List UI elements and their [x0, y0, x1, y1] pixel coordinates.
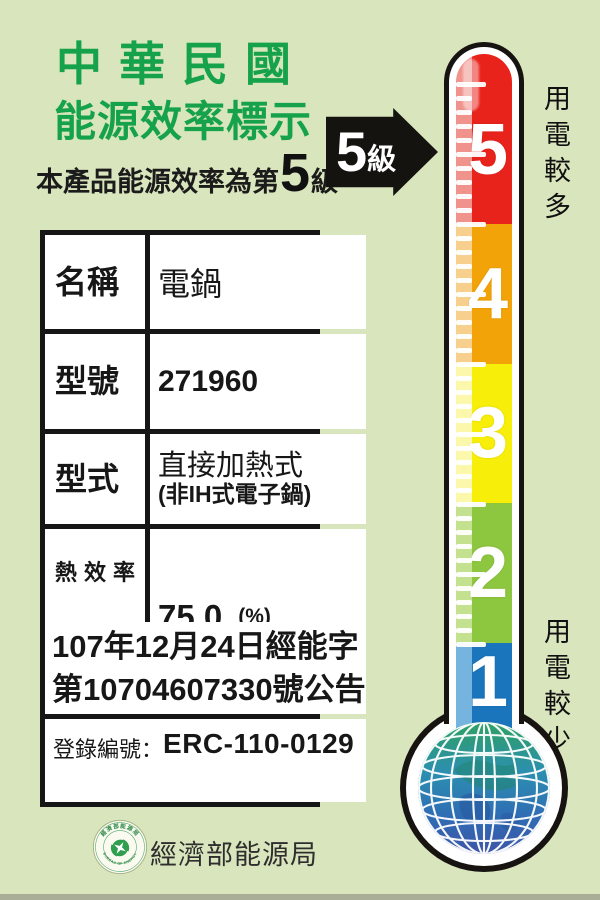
logo-swirl-icon [111, 839, 129, 857]
tick-mark [456, 460, 472, 465]
type-value-line1: 直接加熱式 [158, 450, 311, 482]
grade-sentence-prefix: 本產品能源效率為第 [36, 160, 279, 199]
tick-mark [456, 390, 472, 395]
tick-mark [456, 418, 472, 423]
label-title-line1: 中華民國 [56, 28, 308, 94]
bureau-of-energy-logo: 經濟部能源局 BUREAU OF ENERGY [92, 819, 148, 875]
tick-mark [456, 180, 472, 185]
tick-mark [456, 404, 472, 409]
table-row-name: 名稱 電鍋 [45, 235, 366, 329]
grade-sentence-number: 5 [280, 146, 310, 200]
tick-mark [456, 614, 472, 619]
tick-mark [456, 222, 486, 227]
tick-mark [456, 292, 486, 297]
thermometer-label-more-power: 用電較多 [536, 84, 575, 228]
product-spec-table: 名稱 電鍋 型號 271960 型式 直接加熱式 (非IH式電子鍋) 熱效率值 [40, 230, 320, 807]
table-row-model: 型號 271960 [45, 334, 366, 429]
tick-mark [456, 110, 472, 115]
type-label: 型式 [45, 434, 129, 524]
model-label-cell: 型號 [45, 334, 145, 429]
table-row-announcement: 107年12月24日經能字 第10704607330號公告 [45, 622, 366, 714]
tick-mark [456, 586, 472, 591]
name-label: 名稱 [45, 235, 129, 329]
tick-mark [456, 208, 472, 213]
tick-mark [456, 250, 472, 255]
tick-mark [456, 432, 486, 437]
announcement-cell: 107年12月24日經能字 第10704607330號公告 [45, 622, 366, 714]
registration-number: ERC-110-0129 [163, 728, 354, 760]
tick-mark [456, 376, 472, 381]
tick-mark [456, 516, 472, 521]
tick-mark [456, 124, 472, 129]
announcement-line2: 第10704607330號公告 [52, 668, 366, 711]
type-value-line2: (非IH式電子鍋) [158, 482, 311, 508]
product-grade-sentence: 本產品能源效率為第 5 級 [36, 146, 338, 212]
tick-mark [456, 334, 472, 339]
tick-mark [456, 558, 472, 563]
tick-mark [456, 642, 486, 647]
tick-mark [456, 320, 472, 325]
tick-mark [456, 138, 472, 143]
tick-mark [456, 96, 472, 101]
grade-arrow-number: 5 [336, 124, 367, 180]
tick-mark [456, 474, 472, 479]
tick-mark [456, 236, 472, 241]
tick-mark [456, 502, 486, 507]
energy-efficiency-label: 中華民國 能源效率標示 本產品能源效率為第 5 級 5 級 名稱 電鍋 型號 2… [0, 0, 600, 900]
model-value-cell: 271960 [150, 334, 366, 429]
announcement-line1: 107年12月24日經能字 [52, 625, 366, 668]
name-value-cell: 電鍋 [150, 235, 366, 329]
agency-name: 經濟部能源局 [150, 833, 318, 872]
table-row-efficiency: 熱效率值 75.0 (%) [45, 529, 366, 617]
type-label-cell: 型式 [45, 434, 145, 524]
tick-mark [456, 572, 486, 577]
tick-mark [456, 488, 472, 493]
tick-mark [456, 530, 472, 535]
tick-mark [456, 166, 472, 171]
tick-mark [456, 278, 472, 283]
tick-mark [456, 306, 472, 311]
globe-icon [414, 718, 554, 858]
label-title-line2: 能源效率標示 [54, 88, 312, 149]
table-row-type: 型式 直接加熱式 (非IH式電子鍋) [45, 434, 366, 524]
tick-mark [456, 544, 472, 549]
registration-cell: 登錄編號： ERC-110-0129 [45, 719, 366, 802]
tick-mark [456, 152, 486, 157]
tick-mark [456, 446, 472, 451]
grade-arrow-icon: 5 級 [326, 108, 438, 196]
bottom-edge-strip [0, 894, 600, 900]
tick-mark [456, 362, 486, 367]
tick-mark [456, 82, 486, 87]
tick-mark [456, 628, 472, 633]
type-value-cell: 直接加熱式 (非IH式電子鍋) [150, 434, 366, 524]
table-row-registration: 登錄編號： ERC-110-0129 [45, 719, 366, 802]
name-label-cell: 名稱 [45, 235, 145, 329]
tick-mark [456, 194, 472, 199]
registration-label: 登錄編號： [53, 728, 163, 764]
grade-arrow-unit: 級 [367, 136, 396, 178]
thermometer-digit-1: 1 [460, 645, 516, 719]
tick-mark [456, 264, 472, 269]
tick-mark [456, 348, 472, 353]
tick-mark [456, 600, 472, 605]
model-label: 型號 [45, 334, 129, 429]
